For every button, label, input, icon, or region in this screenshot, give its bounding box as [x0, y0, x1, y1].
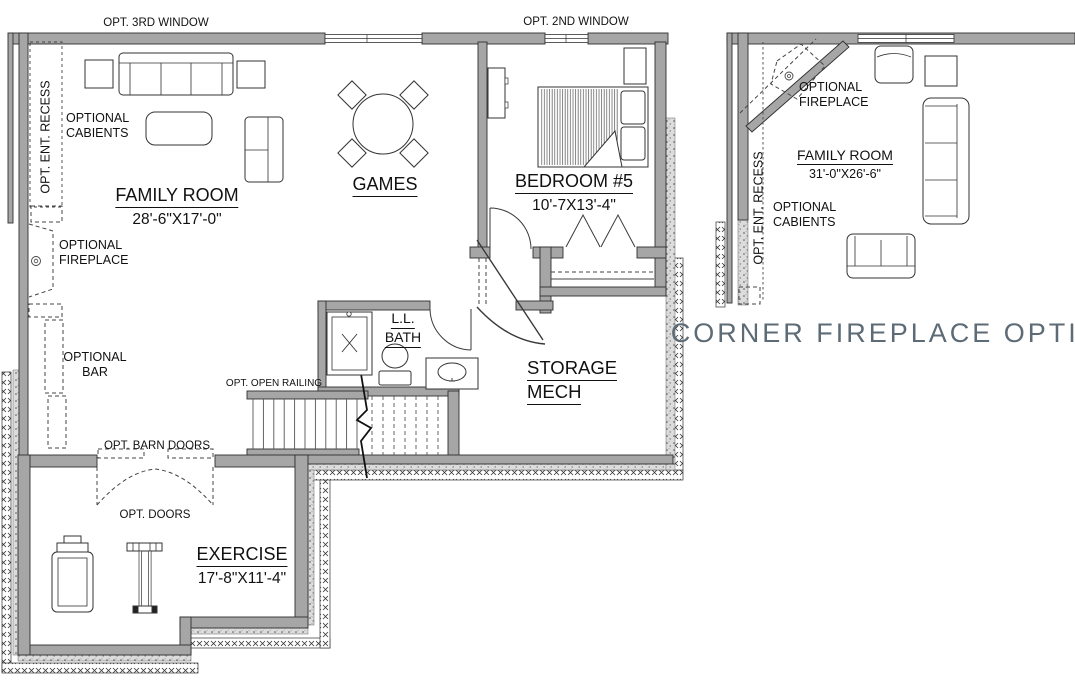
sofa-symbol	[119, 53, 233, 95]
storage-mech-label: STORAGE MECH	[527, 357, 617, 405]
inset-entry-recess-label: OPT. ENT. RECESS	[752, 151, 767, 264]
lounge-chair-symbol	[245, 117, 283, 182]
room-title: BEDROOM #5	[515, 171, 633, 194]
side-table-symbol	[925, 56, 957, 86]
opt-doors-symbol	[97, 469, 213, 505]
shower-head-icon	[347, 312, 351, 316]
exercise-label: EXERCISE 17'-8"X11'-4"	[196, 544, 287, 588]
pillow-symbol	[621, 127, 645, 160]
room-dims: 10'-7X13'-4"	[515, 197, 633, 215]
inset-family-room-label: FAMILY ROOM 31'-0"X26'-6"	[797, 147, 893, 182]
nightstand-symbol	[488, 68, 505, 118]
optional-bar-label: OPTIONAL BAR	[63, 350, 126, 380]
inset-floorplan	[716, 33, 1075, 307]
opt-doors-label: OPT. DOORS	[120, 509, 191, 522]
bedroom5-label: BEDROOM #5 10'-7X13'-4"	[515, 171, 633, 215]
floor-plan-page: OPT. 3RD WINDOW OPT. 2ND WINDOW OPT. ENT…	[0, 0, 1075, 690]
optional-fireplace-symbol	[29, 224, 53, 297]
room-dims: 28'-6"X17'-0"	[115, 211, 238, 229]
inset-window-symbol	[858, 35, 954, 43]
open-railing-label: OPT. OPEN RAILING	[226, 378, 322, 390]
end-table-symbol	[237, 61, 265, 88]
sofa-symbol	[923, 98, 969, 224]
opt-3rd-window-label: OPT. 3RD WINDOW	[103, 17, 208, 30]
optional-cabinets-label: OPTIONAL CABIENTS	[66, 111, 129, 141]
armchair-symbol	[875, 46, 913, 83]
ll-bath-label: L.L. BATH	[385, 310, 421, 348]
games-table-symbol	[338, 81, 428, 167]
dresser-symbol	[624, 48, 646, 84]
opt-2nd-window-label: OPT. 2ND WINDOW	[523, 16, 628, 29]
optional-fireplace-label: OPTIONAL FIREPLACE	[59, 238, 128, 268]
room-dims: 17'-8"X11'-4"	[196, 570, 287, 588]
end-table-symbol	[85, 60, 113, 88]
pillow-symbol	[621, 91, 645, 124]
fireplace-vent-icon	[32, 257, 41, 266]
room-dims: 31'-0"X26'-6"	[797, 167, 893, 181]
room-title: FAMILY ROOM	[797, 147, 893, 165]
coffee-table-symbol	[146, 112, 212, 145]
bedroom-furniture	[488, 48, 648, 167]
barn-doors-label: OPT. BARN DOORS	[104, 440, 210, 453]
corner-fireplace-caption: CORNER FIREPLACE OPTION	[671, 318, 1075, 349]
weight-bench-symbol	[127, 543, 162, 551]
inset-optional-cabinets-label: OPTIONAL CABIENTS	[773, 200, 836, 230]
inset-optional-fireplace-label: OPTIONAL FIREPLACE	[799, 80, 868, 110]
games-label: GAMES	[352, 174, 417, 197]
room-title: FAMILY ROOM	[115, 185, 238, 208]
entry-recess-label: OPT. ENT. RECESS	[39, 80, 54, 193]
family-room-label: FAMILY ROOM 28'-6"X17'-0"	[115, 185, 238, 229]
exercise-equipment	[52, 536, 162, 613]
room-title: EXERCISE	[196, 544, 287, 567]
fireplace-vent-icon	[785, 72, 793, 80]
